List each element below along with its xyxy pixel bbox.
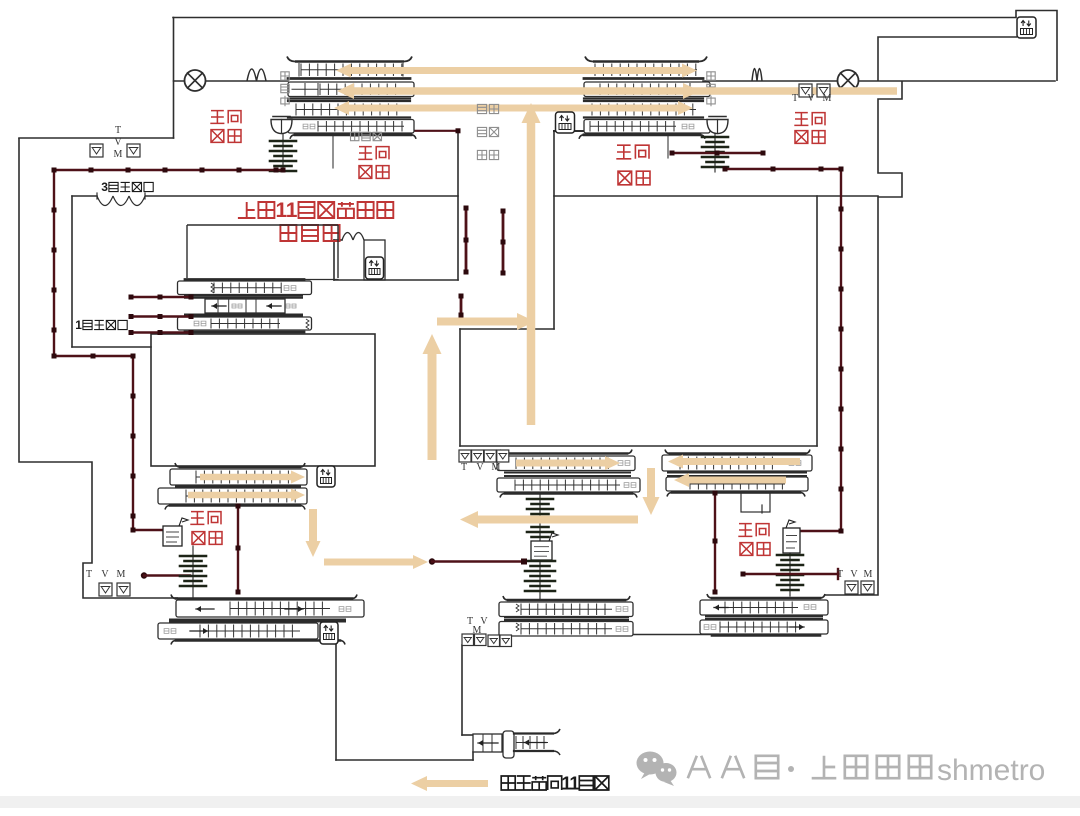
- svg-text:1: 1: [569, 772, 579, 793]
- svg-text:T: T: [792, 93, 798, 104]
- svg-text:shmetro: shmetro: [937, 754, 1045, 787]
- svg-text:V: V: [480, 616, 488, 627]
- svg-text:1: 1: [286, 199, 298, 222]
- svg-text:M: M: [114, 149, 123, 160]
- svg-text:1: 1: [75, 318, 82, 332]
- svg-text:3: 3: [101, 180, 108, 194]
- svg-text:M: M: [117, 569, 126, 580]
- svg-text:V: V: [114, 137, 122, 148]
- svg-text:M: M: [823, 93, 832, 104]
- svg-text:M: M: [492, 462, 501, 473]
- svg-text:M: M: [864, 569, 873, 580]
- svg-text:T: T: [115, 125, 121, 136]
- svg-text:T: T: [837, 569, 843, 580]
- svg-text:V: V: [101, 569, 109, 580]
- svg-text:T: T: [461, 462, 467, 473]
- svg-text:V: V: [850, 569, 858, 580]
- svg-text:V: V: [807, 93, 815, 104]
- svg-text:T: T: [86, 569, 92, 580]
- svg-text:V: V: [476, 462, 484, 473]
